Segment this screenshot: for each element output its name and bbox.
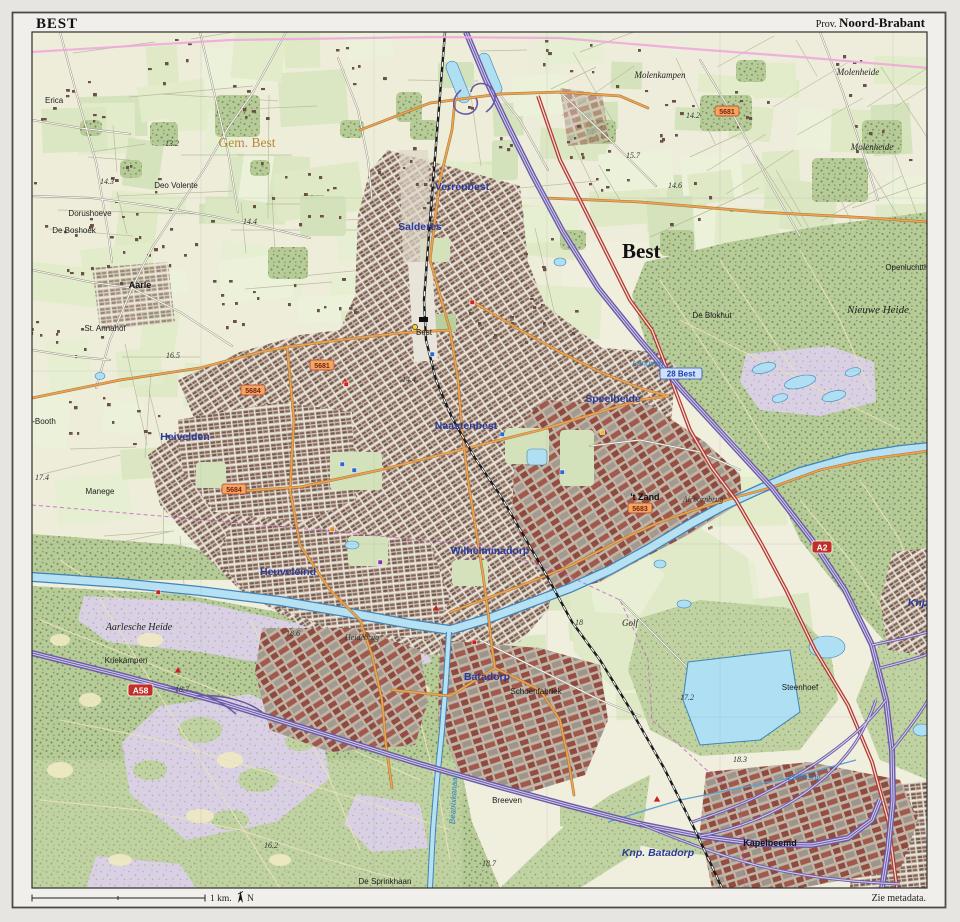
svg-text:Nieuwe Heide: Nieuwe Heide: [846, 304, 909, 316]
svg-text:Openluchtth.: Openluchtth.: [885, 263, 930, 272]
svg-text:Golf: Golf: [622, 618, 640, 628]
svg-text:5683: 5683: [632, 506, 648, 513]
svg-text:16.2: 16.2: [264, 841, 278, 850]
svg-text:Airbornbrug: Airbornbrug: [682, 495, 723, 504]
svg-text:k-Booth: k-Booth: [28, 417, 56, 426]
svg-text:Heidebrug: Heidebrug: [344, 633, 379, 642]
svg-text:A58: A58: [133, 686, 149, 696]
svg-text:A2: A2: [817, 543, 828, 553]
svg-text:Ekkersrijt: Ekkersrijt: [788, 773, 822, 782]
svg-text:'t Zand: 't Zand: [630, 492, 659, 502]
svg-text:Kriekampen: Kriekampen: [105, 656, 148, 665]
svg-text:1 km.: 1 km.: [210, 894, 232, 904]
svg-text:28 Best: 28 Best: [667, 370, 696, 379]
svg-text:14.4: 14.4: [243, 217, 257, 226]
svg-text:15.7: 15.7: [626, 151, 641, 160]
svg-text:5681: 5681: [314, 363, 330, 370]
svg-text:18.7: 18.7: [482, 859, 497, 868]
svg-text:Heivelden: Heivelden: [160, 431, 210, 443]
svg-text:5684: 5684: [226, 487, 242, 494]
svg-text:18.3: 18.3: [733, 755, 747, 764]
svg-text:18.6: 18.6: [286, 629, 300, 638]
svg-text:5681: 5681: [719, 109, 735, 116]
svg-text:17.2: 17.2: [680, 693, 694, 702]
svg-text:Erica: Erica: [45, 96, 64, 105]
svg-text:14.6: 14.6: [668, 181, 682, 190]
svg-text:Deo Volente: Deo Volente: [154, 181, 198, 190]
svg-text:De Sprinkhaan: De Sprinkhaan: [359, 877, 412, 886]
svg-text:St. Annahof: St. Annahof: [84, 324, 126, 333]
svg-text:Naastenbest: Naastenbest: [435, 420, 498, 432]
svg-text:Schoenfabriek: Schoenfabriek: [510, 687, 562, 696]
svg-text:14.2: 14.2: [686, 111, 700, 120]
svg-text:Molenheide: Molenheide: [836, 67, 879, 77]
svg-text:Best: Best: [622, 239, 661, 263]
svg-text:Wilhelminadorp: Wilhelminadorp: [451, 545, 530, 557]
svg-text:Verrenbest: Verrenbest: [435, 181, 490, 193]
svg-text:Zie metadata.: Zie metadata.: [872, 893, 926, 904]
svg-text:14.3: 14.3: [100, 177, 114, 186]
svg-text:De Boshoek: De Boshoek: [52, 226, 97, 235]
svg-text:Molenheide: Molenheide: [850, 142, 893, 152]
svg-text:Langven: Langven: [633, 359, 664, 368]
svg-text:Gem. Best: Gem. Best: [219, 135, 276, 150]
svg-text:Heuveleind: Heuveleind: [260, 566, 316, 578]
svg-text:16.5: 16.5: [166, 351, 180, 360]
svg-text:BEST: BEST: [36, 16, 78, 32]
svg-text:Salderes: Salderes: [398, 221, 442, 233]
svg-text:Breeven: Breeven: [492, 796, 522, 805]
svg-text:17.4: 17.4: [35, 473, 49, 482]
svg-text:Knp: Knp: [908, 597, 929, 609]
svg-text:N: N: [247, 894, 254, 904]
svg-text:Batadorp: Batadorp: [464, 671, 510, 683]
svg-text:Best: Best: [416, 328, 433, 337]
svg-text:18: 18: [575, 618, 583, 627]
svg-text:14.4: 14.4: [402, 375, 416, 384]
svg-text:Manege: Manege: [86, 487, 115, 496]
svg-text:Dorushoeve: Dorushoeve: [68, 209, 112, 218]
svg-text:Knp. Batadorp: Knp. Batadorp: [622, 847, 695, 859]
svg-text:Kapelbeemd: Kapelbeemd: [743, 838, 797, 848]
svg-text:Aarlesche Heide: Aarlesche Heide: [105, 622, 173, 633]
svg-text:13.2: 13.2: [165, 139, 179, 148]
svg-text:Steenhoef: Steenhoef: [782, 683, 819, 692]
svg-text:Aarle: Aarle: [129, 280, 152, 290]
svg-text:Molenkampen: Molenkampen: [634, 70, 686, 80]
svg-text:5684: 5684: [245, 388, 261, 395]
svg-text:De Blokhut: De Blokhut: [692, 311, 732, 320]
svg-text:18.7: 18.7: [175, 685, 190, 694]
svg-text:Speelheide: Speelheide: [585, 393, 641, 405]
